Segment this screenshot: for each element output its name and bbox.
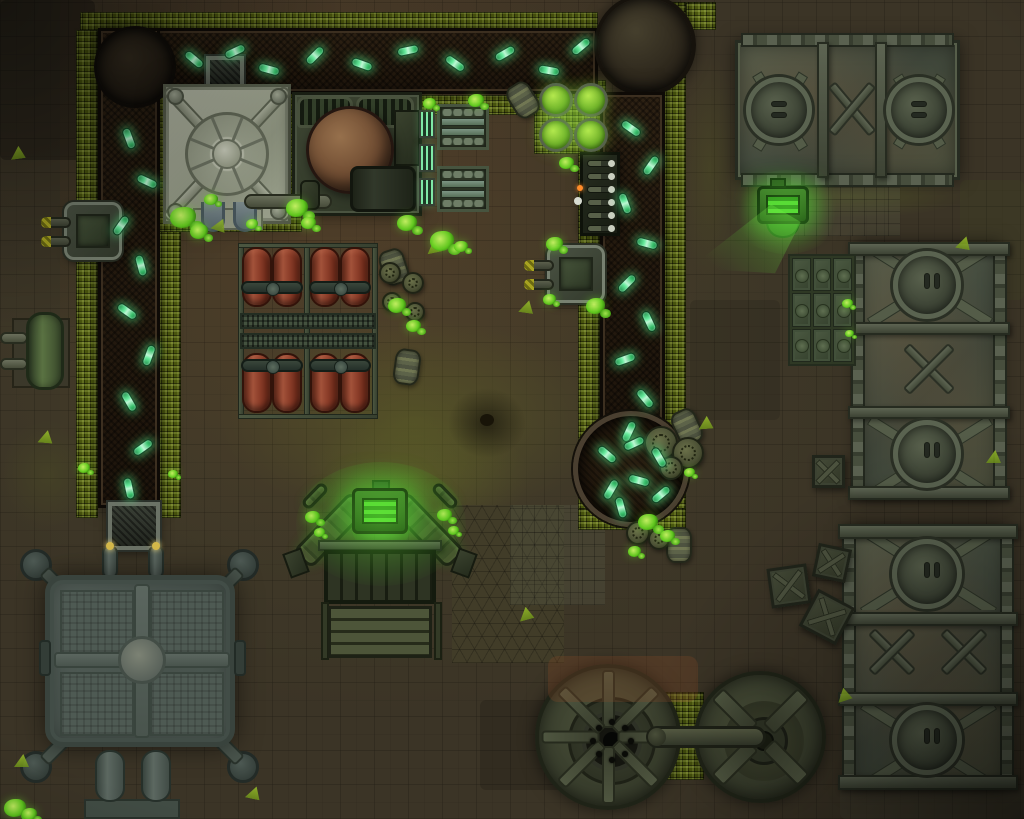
rack-canister-row: [442, 200, 484, 207]
boiler-drum: [350, 166, 416, 212]
pipe-machine-window: [76, 214, 110, 248]
radiator-panel: [419, 110, 435, 138]
elevator-feed-pipe: [148, 545, 164, 579]
goo-splat: [430, 231, 454, 251]
hatch-slot: [935, 729, 939, 743]
tank-catwalk: [240, 313, 376, 329]
goo-splat: [78, 463, 90, 473]
elevator-platform[interactable]: [25, 548, 260, 819]
supply-crate[interactable]: [812, 543, 852, 583]
red-tank-rack[interactable]: [238, 243, 378, 419]
platform-rail: [848, 486, 1010, 500]
round-hatch[interactable]: [892, 705, 962, 775]
rack-shelf: [442, 190, 484, 198]
goo-splat: [305, 511, 320, 523]
platform-rail: [838, 524, 1018, 539]
floor-plate: [792, 293, 811, 326]
lamp-knob: [770, 178, 786, 188]
lamp-console[interactable]: [757, 186, 809, 224]
elevator-base-plate: [84, 799, 180, 819]
turbine-bolt: [609, 757, 615, 763]
turbine-bolt: [628, 738, 634, 744]
goo-splat: [286, 199, 308, 217]
chem-vat[interactable]: [539, 83, 573, 117]
goo-splat: [437, 509, 452, 521]
gate-stairs[interactable]: [328, 606, 432, 658]
goo-splat: [246, 219, 258, 229]
lamp-screen: [766, 195, 800, 215]
pipe-stub: [41, 217, 71, 228]
indicator-light-orange: [577, 185, 583, 191]
elevator-deck[interactable]: [45, 575, 235, 747]
goo-splat: [388, 298, 406, 313]
goo-splat: [397, 215, 417, 231]
console-lever[interactable]: [587, 173, 613, 180]
gate-console[interactable]: [352, 488, 408, 534]
pipe-stub: [524, 279, 554, 290]
console-lever[interactable]: [587, 225, 613, 232]
goo-splat: [684, 468, 695, 477]
stair-rail: [434, 602, 442, 660]
rack-canister-row: [442, 138, 484, 145]
turbine-rib: [602, 746, 615, 804]
gate-door[interactable]: [324, 550, 436, 604]
cargo-platform-right-upper: [856, 242, 1002, 500]
floor-plate: [792, 329, 811, 362]
platform-divider: [817, 42, 829, 178]
grated-walkway: [76, 30, 98, 518]
tank-valve-bar[interactable]: [309, 281, 371, 294]
press-dial-hub: [212, 139, 242, 169]
goo-splat: [22, 808, 37, 819]
pipe-cap-light: [152, 542, 160, 550]
turbine-bolt: [609, 719, 615, 725]
goo-barrel[interactable]: [379, 262, 401, 284]
gate-fin: [430, 481, 459, 511]
floor-plate: [813, 293, 832, 326]
turbine-bolt: [590, 738, 596, 744]
hatch-slot: [935, 274, 939, 288]
floor-plate: [833, 258, 852, 291]
round-hatch[interactable]: [892, 539, 962, 609]
side-latch: [39, 640, 51, 676]
chem-vat[interactable]: [574, 83, 608, 117]
goo-splat: [454, 241, 468, 252]
hatch-slot: [912, 102, 926, 106]
deck-panel: [150, 672, 224, 736]
goo-splat: [842, 299, 853, 308]
rack-rail: [372, 243, 378, 419]
rust-pad: [548, 656, 698, 702]
goo-barrel[interactable]: [402, 272, 424, 294]
moss-field: [680, 55, 740, 285]
hatch-slot: [925, 729, 929, 743]
platform-rail: [838, 692, 1018, 706]
platform-rail: [848, 322, 1010, 335]
floor-plate: [792, 258, 811, 291]
chem-vat[interactable]: [574, 118, 608, 152]
floor-plate-grid: [788, 254, 856, 366]
goo-splat: [586, 298, 605, 314]
goo-splat: [406, 320, 421, 332]
deck-panel: [60, 672, 134, 736]
lever-console[interactable]: [580, 152, 620, 236]
pipe-machine-window: [559, 257, 593, 291]
hatch-slot: [912, 113, 926, 117]
tank-valve-bar[interactable]: [309, 359, 371, 372]
turbine-bolt: [596, 725, 602, 731]
lever-ball-handle[interactable]: [574, 197, 582, 205]
goo-splat: [546, 237, 563, 251]
console-lever[interactable]: [587, 160, 613, 167]
tank-valve-bar[interactable]: [241, 359, 303, 372]
wall-tank-pipe: [0, 358, 28, 370]
cargo-platform-top: [735, 40, 960, 180]
rack-shelf: [442, 128, 484, 136]
goo-splat: [423, 98, 436, 109]
pipe-stub: [41, 236, 71, 247]
goo-splat: [638, 514, 658, 530]
goo-splat: [628, 546, 641, 557]
rack-canister-row: [442, 109, 484, 116]
round-hatch[interactable]: [893, 251, 961, 319]
rack-shelf: [442, 180, 484, 188]
goo-splat: [845, 330, 854, 337]
hatch-slot: [772, 102, 786, 106]
tank-catwalk: [240, 333, 376, 349]
floor-plate: [813, 329, 832, 362]
chem-vat[interactable]: [539, 118, 573, 152]
red-tank: [340, 247, 370, 307]
radiator-panel: [419, 144, 435, 172]
goo-splat: [314, 528, 325, 537]
goo-splat: [559, 157, 574, 169]
console-lever[interactable]: [587, 212, 613, 219]
press-corner-bolt: [270, 88, 287, 105]
deck-panel: [150, 590, 224, 654]
rack-shelf: [442, 118, 484, 126]
gate-fin: [300, 481, 329, 511]
tank-valve-bar[interactable]: [241, 281, 303, 294]
platform-rail: [838, 612, 1018, 626]
goo-splat: [301, 217, 316, 229]
pipe-cap-light: [106, 542, 114, 550]
hatch-slot: [772, 113, 786, 117]
floor-plate: [813, 258, 832, 291]
press-corner-bolt: [167, 88, 184, 105]
boiler-machine[interactable]: [292, 92, 422, 216]
wall-tank-body: [26, 312, 64, 390]
elevator-drain-pipe: [141, 750, 171, 802]
red-tank: [310, 247, 340, 307]
hatch-slot: [935, 443, 939, 457]
wall-tank-pipe: [0, 332, 28, 344]
radiator-panel: [419, 178, 435, 206]
cargo-platform-right-lower: [847, 524, 1009, 790]
hatch-slot: [925, 274, 929, 288]
goo-splat: [204, 194, 218, 205]
floor-patch: [690, 300, 780, 420]
elevator-drain-pipe: [95, 750, 125, 802]
pipe-stub: [524, 260, 554, 271]
boiler-side-unit: [394, 110, 420, 166]
red-tank: [242, 247, 272, 307]
pipe-machine[interactable]: [547, 245, 605, 303]
supply-crate[interactable]: [766, 563, 811, 608]
goo-splat: [660, 530, 675, 542]
round-hatch[interactable]: [746, 77, 812, 143]
console-lever[interactable]: [587, 199, 613, 206]
gate-console-screen: [362, 498, 398, 524]
hatch-slot: [925, 443, 929, 457]
canister-rack[interactable]: [437, 104, 489, 150]
goo-splat: [448, 526, 459, 535]
rack-rail: [238, 414, 378, 419]
supply-crate[interactable]: [812, 455, 845, 488]
round-hatch[interactable]: [886, 77, 952, 143]
goo-splat: [190, 224, 208, 239]
map-root[interactable]: [0, 0, 1024, 819]
oil-stain-center: [480, 414, 494, 426]
goo-splat: [543, 294, 556, 305]
hatch-slot: [925, 563, 929, 577]
red-tank: [272, 247, 302, 307]
console-lever[interactable]: [587, 186, 613, 193]
side-latch: [234, 640, 246, 676]
canister-rack[interactable]: [437, 166, 489, 212]
platform-rail: [838, 775, 1018, 790]
hatch-slot: [935, 563, 939, 577]
round-hatch[interactable]: [893, 420, 961, 488]
turbine-pipe-cap: [648, 728, 666, 746]
platform-rail: [848, 406, 1010, 419]
goo-splat: [468, 94, 484, 107]
deck-center-disc: [118, 636, 166, 684]
conveyor-belt-right: [600, 92, 665, 444]
goo-splat: [168, 470, 178, 478]
elevator-feed-pipe: [102, 545, 118, 579]
platform-rib-edge: [1000, 532, 1014, 782]
wall-tank: [8, 310, 72, 394]
rack-canister-row: [442, 171, 484, 178]
